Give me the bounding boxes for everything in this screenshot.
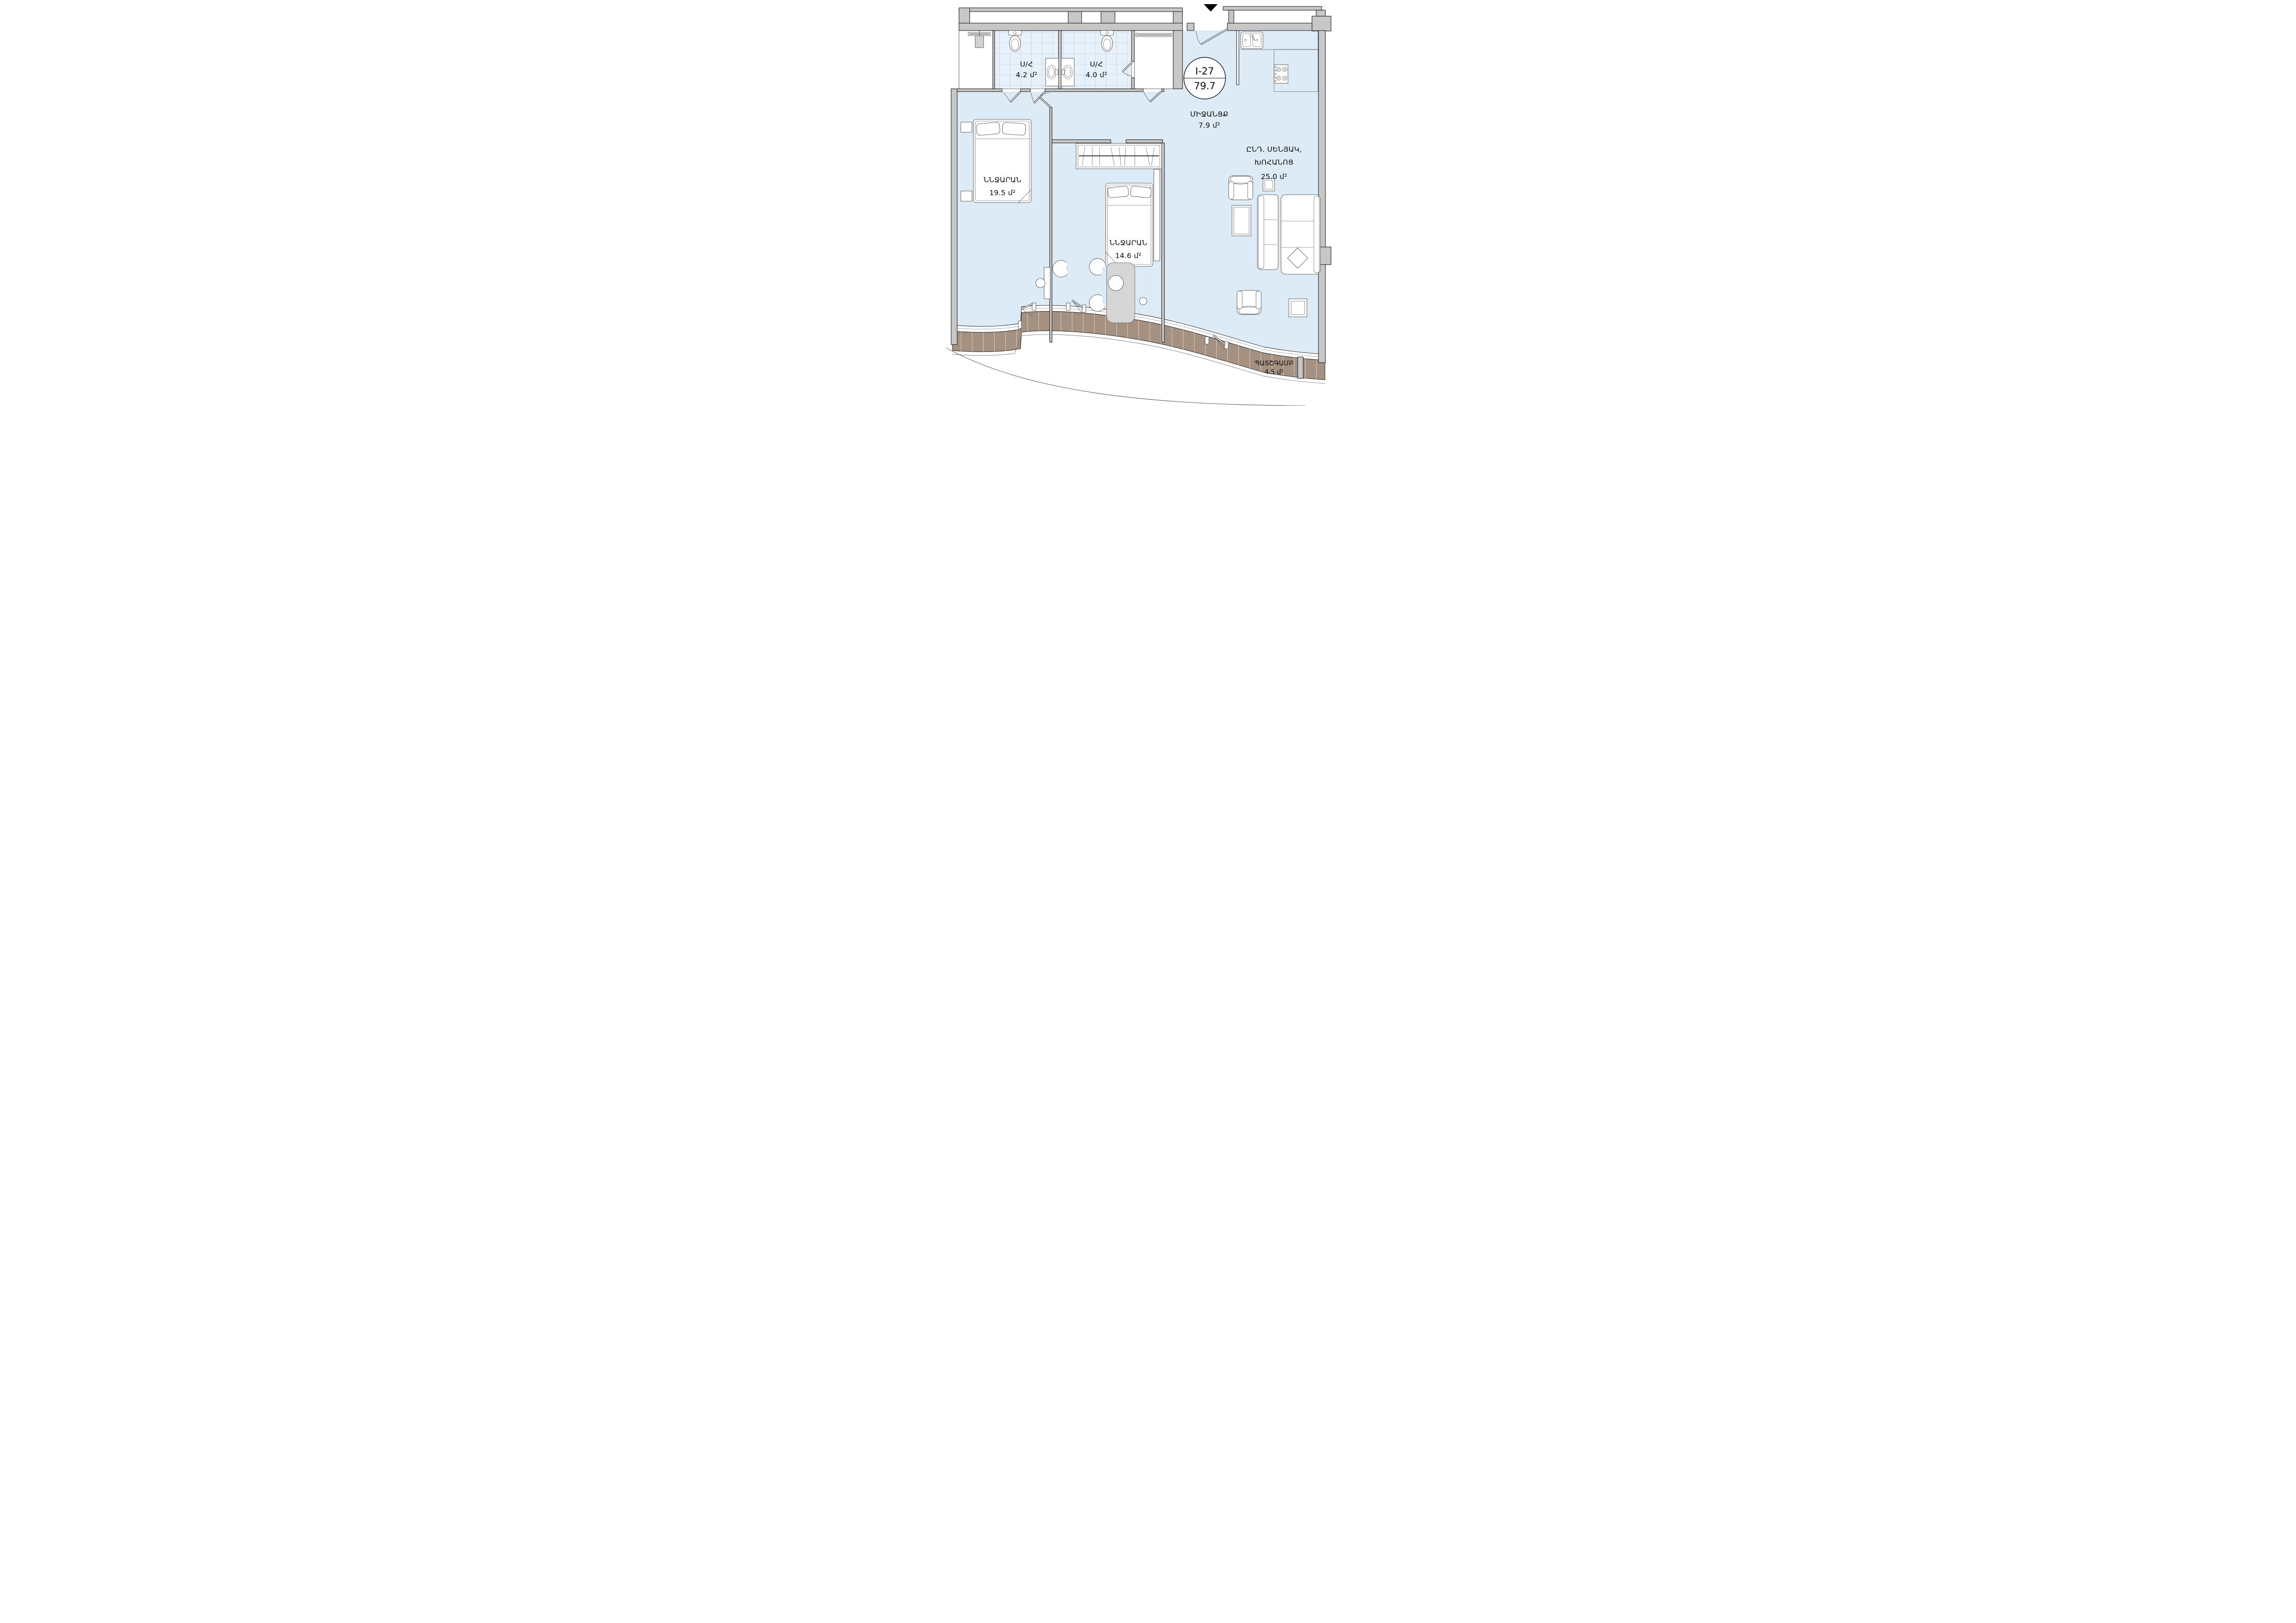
hallway-area: 7.9 մ² <box>1199 121 1220 130</box>
stool <box>1139 297 1147 305</box>
window-jamb <box>1018 321 1021 328</box>
wall-entry-left-jamb <box>1187 23 1194 31</box>
wall-bedroom2-right <box>1162 143 1164 342</box>
sink-icon <box>1061 58 1074 86</box>
wall-shaft <box>1173 31 1182 89</box>
wall-left <box>951 89 957 345</box>
dresser-tv-unit <box>1154 169 1160 261</box>
bedroom1-area: 19.5 մ² <box>990 189 1016 197</box>
balcony-area: 4.5 մ² <box>1264 369 1283 376</box>
wall-kitchen-partition <box>1237 31 1239 85</box>
wall-column <box>1229 10 1234 23</box>
toilet-icon <box>1101 31 1114 51</box>
nightstand <box>961 122 972 132</box>
rug <box>1107 263 1135 323</box>
wardrobe-room-floor <box>1134 31 1173 89</box>
wall-hall-top <box>1162 89 1164 92</box>
wall-top-main-left <box>959 23 1182 31</box>
wall-laundry-bath1 <box>993 31 995 89</box>
stove-icon <box>1274 65 1288 83</box>
wall-bedroom1-top <box>1021 89 1030 92</box>
round-table <box>1108 276 1124 291</box>
toilet-icon <box>1009 31 1021 51</box>
wardrobe <box>1076 143 1162 169</box>
pillow <box>976 122 1000 136</box>
kitchen-sink-icon <box>1241 32 1263 49</box>
wall-column <box>1101 12 1115 23</box>
wall-bedroom1-right <box>1050 107 1052 342</box>
living-area: 25.0 մ² <box>1261 173 1287 181</box>
wall-hall-top <box>1045 89 1143 92</box>
desk-chair <box>1036 278 1045 288</box>
washing-machine-icon <box>975 36 984 48</box>
living-label-line1: ԸՆԴ. ՍԵՆՅԱԿ, <box>1246 145 1302 154</box>
window-jamb <box>1066 303 1070 310</box>
wall-bath2-closet <box>1132 31 1134 62</box>
unit-number: I-27 <box>1195 66 1214 77</box>
wall-bath1-bath2 <box>1058 31 1061 89</box>
armchair <box>1237 290 1261 315</box>
unit-total-area: 79.7 <box>1194 80 1216 92</box>
bedroom2-label: ՆՆՋԱՐԱՆ <box>1109 239 1147 247</box>
wall-column <box>1316 10 1325 16</box>
pillow <box>1130 186 1151 198</box>
bathroom1-label: Ս/Հ <box>1020 60 1033 68</box>
wall-top-band-left <box>959 8 1182 12</box>
wall-column <box>1173 12 1182 23</box>
unit-badge: I-27 79.7 <box>1184 57 1225 99</box>
nightstand <box>961 191 972 201</box>
floor-plan-canvas: I-27 79.7 Ս/Հ 4.2 մ² Ս/Հ 4.0 մ² ՄԻՋԱՆՑՔ … <box>861 0 1435 406</box>
armchair <box>1229 176 1253 200</box>
wall-column <box>1068 12 1082 23</box>
bathroom2-label: Ս/Հ <box>1090 60 1103 68</box>
coffee-table <box>1232 205 1251 236</box>
hallway-label: ՄԻՋԱՆՑՔ <box>1190 110 1229 118</box>
wall-corner-pillar <box>1312 16 1331 31</box>
side-table <box>1289 299 1307 317</box>
wall-bath2-closet <box>1132 78 1134 89</box>
wall-bedroom2-top <box>1126 140 1163 143</box>
living-label-line2: ԽՈՀԱՆՈՑ <box>1255 158 1293 167</box>
sofa <box>1257 195 1320 274</box>
entrance-marker-icon <box>1204 4 1218 12</box>
bathroom1-area: 4.2 մ² <box>1016 71 1038 79</box>
pillow <box>1108 186 1129 198</box>
sink-icon <box>1046 58 1058 86</box>
wall-top-band-right <box>1223 6 1322 10</box>
bedroom1-label: ՆՆՋԱՐԱՆ <box>984 176 1021 184</box>
wall-balcony-end <box>1298 357 1303 378</box>
floor-plan-page: I-27 79.7 Ս/Հ 4.2 մ² Ս/Հ 4.0 մ² ՄԻՋԱՆՑՔ … <box>861 0 1435 406</box>
wall-bedroom2-top <box>1052 140 1111 143</box>
wall-column <box>959 8 970 23</box>
balcony-label: ՊԱՏՇԳԱՄԲ <box>1254 360 1293 367</box>
bedroom2-area: 14.6 մ² <box>1115 252 1142 260</box>
wall-kitchen-top <box>1227 23 1312 31</box>
wall-bedroom1-top <box>957 89 1002 92</box>
window-jamb <box>1205 337 1209 344</box>
bathroom2-area: 4.0 մ² <box>1086 71 1108 79</box>
pillow <box>1002 122 1026 135</box>
